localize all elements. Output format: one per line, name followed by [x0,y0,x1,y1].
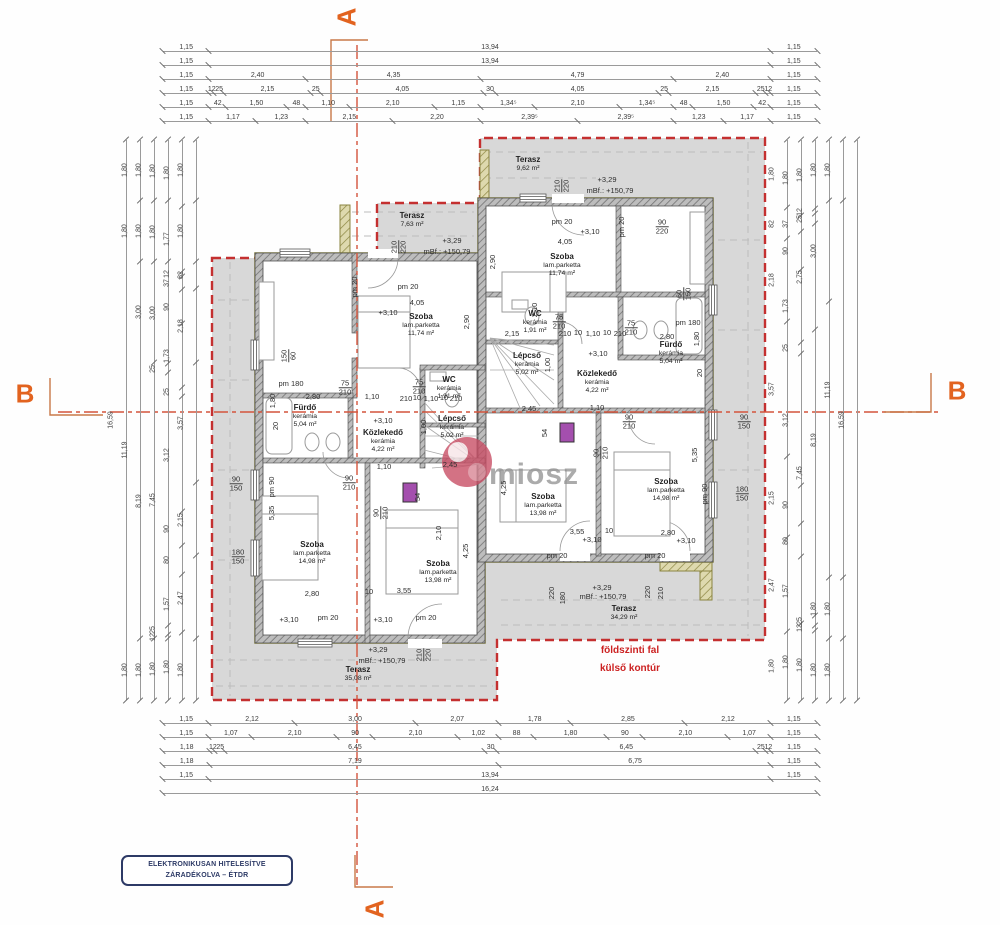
wardrobe-icon [259,282,274,360]
dim-label: 37 [164,280,171,288]
dim-label: 2,12 [721,716,735,723]
dimension-annotation: +3,10 [374,616,393,624]
dim-label: 25 [164,388,171,396]
dim-label: 1,80 [178,663,185,677]
dim-label: 1,15 [787,58,801,65]
dim-label: 1,15 [787,100,801,107]
dim-label: 1,07 [742,730,756,737]
dimension-annotation: 54 [414,493,422,501]
dim-label: 16,24 [481,786,499,793]
dimension-annotation: +3,10 [280,616,299,624]
dimension-annotation: 180150 [232,548,245,566]
dim-label: 1,15 [179,772,193,779]
dim-label: 2,10 [386,100,400,107]
dimension-annotation: 90150 [230,475,243,493]
dimension-chain: 1,152,123,002,071,782,852,121,15 [85,712,923,724]
dimension-annotation: +3,10 [583,536,602,544]
dimension-annotation: pm 20 [618,217,626,238]
note-line1: földszinti fal [601,645,659,656]
dim-label: 1,07 [224,730,238,737]
dim-label: 2,47 [769,578,776,592]
dimension-annotation: mBf.: +150,79 [359,657,406,665]
dimension-chain: 1,801,80822,183,572,152,471,80 [185,140,197,700]
dim-label: 3,00 [150,307,157,321]
dim-label: 1,80 [150,225,157,239]
dim-label: 1,80 [150,663,157,677]
dim-label: 2,40 [251,72,265,79]
dimension-annotation: +3,10 [581,228,600,236]
dim-label: 13,94 [481,772,499,779]
dimension-annotation: 2,80 [661,529,676,537]
dimension-annotation: +3,29 [598,176,617,184]
dimension-annotation: 4,25 [500,481,508,496]
dim-label: 3,00 [348,716,362,723]
dim-label: 2,39⁵ [618,114,635,121]
dim-label: 1,80 [122,663,129,677]
dimension-chain: 1,15421,50481,102,101,151,34⁵2,101,34⁵48… [85,96,923,108]
dim-label: 1,80 [811,164,818,178]
dimension-chain: 1,152,404,354,792,401,15 [85,68,923,80]
dimension-annotation: 75210 [625,319,638,337]
room-label: Közlekedőkerámia4,22 m² [363,428,403,454]
room-label: Terasz7,63 m² [400,211,425,229]
dim-label: 16,59 [108,411,115,429]
dim-label: 1,15 [451,100,465,107]
dimension-annotation: 10 [440,394,448,402]
dimension-annotation: +3,29 [593,584,612,592]
dimension-annotation: pm 20 [351,277,359,298]
dimension-annotation: 90210 [343,474,356,492]
dim-label: 2,10 [679,730,693,737]
room-label: Terasz35,08 m² [345,665,372,683]
stamp-line2: ZÁRADÉKOLVA – ÉTDR [166,872,249,879]
dim-label: 3,00 [136,305,143,319]
dimension-annotation: 1,10 [377,463,392,471]
dimension-annotation: 2,90 [489,255,497,270]
dim-label: 42 [758,100,766,107]
etdr-stamp: ELEKTRONIKUSAN HITELESÍTVE ZÁRADÉKOLVA –… [121,855,293,886]
dim-label: 1,02 [472,730,486,737]
dim-label: 1,73 [164,349,171,363]
dim-label: 2,18 [769,274,776,288]
room-label: Fürdőkerámia5,04 m² [659,340,683,366]
dim-label: 1,77 [164,233,171,247]
dim-label: 8,19 [811,433,818,447]
room-label: Lépcsőkerámia5,02 m² [438,414,466,440]
dimension-annotation: pm 90 [701,484,709,505]
dim-label: 1,23 [274,114,288,121]
dim-label: 2,20 [430,114,444,121]
dimension-annotation: 54 [541,429,549,437]
dim-label: 1,57 [783,584,790,598]
dim-label: 1,15 [179,716,193,723]
toilet-icon [305,433,319,451]
dim-label: 90 [783,247,790,255]
section-marker-b-left: B [16,379,35,410]
dimension-annotation: 90150 [738,413,751,431]
dimension-chain: 1,1812256,45306,4525121,15 [85,740,923,752]
floor-plan-canvas: 1,1513,941,151,1513,941,151,152,404,354,… [0,0,1000,925]
dimension-chain: 1,151,171,232,152,202,39⁵2,39⁵1,231,171,… [85,110,923,122]
dimension-annotation: 4,25 [462,544,470,559]
dim-label: 1,80 [825,602,832,616]
dim-label: 13,94 [481,44,499,51]
section-marker-b-right: B [948,376,967,407]
dim-label: 7,45 [797,466,804,480]
room-label: Lépcsőkerámia5,02 m² [513,351,541,377]
dim-label: 25 [150,365,157,373]
dimension-annotation: mBf.: +150,79 [580,593,627,601]
dimension-annotation: 10 [603,329,611,337]
dim-label: 1,80 [178,224,185,238]
dim-label: 1,34⁵ [639,100,656,107]
dimension-annotation: 210220 [415,649,433,662]
dim-label: 37 [783,220,790,228]
dimension-annotation: 75210 [339,379,352,397]
dim-label: 1,17 [226,114,240,121]
dimension-annotation: 10 [413,394,421,402]
dim-label: 3,57 [769,383,776,397]
toilet-icon [326,433,340,451]
dim-label: 1,80 [136,663,143,677]
room-label: Szobalam.parketta11,74 m² [543,252,580,278]
dimension-annotation: +3,10 [589,350,608,358]
dim-label: 2,15 [343,114,357,121]
dimension-annotation: 210220 [553,180,571,193]
dim-label: 1,80 [783,171,790,185]
dimension-annotation: 220 [644,586,652,599]
dimension-annotation: 220 [548,587,556,600]
dim-label: 7,45 [150,493,157,507]
dim-label: 1,80 [164,167,171,181]
dim-label: 4,05 [571,86,585,93]
dimension-annotation: 90220 [656,218,669,236]
dim-label: 6,75 [628,758,642,765]
dimension-annotation: 1,00 [544,358,552,373]
dimension-annotation: 10 [605,527,613,535]
dim-label: 1,15 [179,44,193,51]
room-label: Szobalam.parketta11,74 m² [402,312,439,338]
dimension-annotation: pm 20 [552,218,573,226]
dimension-annotation: 2,80 [660,333,675,341]
dimension-annotation: 2,90 [463,315,471,330]
section-marker-a-bottom: A [360,900,391,919]
dimension-annotation: 180 [559,592,567,605]
dim-label: 1,80 [122,224,129,238]
dim-label: 90 [164,303,171,311]
dim-label: 3,57 [178,416,185,430]
dim-label: 2,75 [797,270,804,284]
dim-label: 42 [214,100,222,107]
dimension-annotation: 1,10 [365,393,380,401]
dim-label: 3,12 [783,413,790,427]
dim-label: 1,80 [136,224,143,238]
dim-label: 1,80 [564,730,578,737]
dim-label: 2,18 [178,319,185,333]
dim-label: 82 [178,271,185,279]
dim-label: 12 [150,633,157,641]
dim-label: 2,40 [716,72,730,79]
dimension-annotation: 1,00 [420,420,428,435]
dimension-annotation: 2,45 [522,405,537,413]
dim-label: 25 [797,215,804,223]
dim-label: 90 [351,730,359,737]
dim-label: 2,10 [288,730,302,737]
dim-label: 1,80 [136,164,143,178]
dimension-annotation: 3,55 [397,587,412,595]
dim-label: 1,15 [179,100,193,107]
dim-label: 1,78 [528,716,542,723]
dimension-annotation: 5,35 [268,506,276,521]
dim-label: 1,50 [250,100,264,107]
dimension-annotation: 1,10 [590,404,605,412]
dim-label: 1,50 [717,100,731,107]
dim-label: 13,94 [481,58,499,65]
dimension-annotation: +3,10 [677,537,696,545]
dim-label: 1,15 [179,730,193,737]
dim-label: 4,35 [387,72,401,79]
dim-label: 2,85 [621,716,635,723]
dimension-annotation: +3,10 [374,417,393,425]
dim-label: 1,80 [825,663,832,677]
sink-icon [512,300,528,309]
dim-label: 1,15 [787,86,801,93]
room-label: Terasz9,62 m² [516,155,541,173]
dimension-chain: 1,1513,941,15 [85,54,923,66]
dimension-annotation: pm 20 [645,552,666,560]
dim-label: 2,15 [261,86,275,93]
dimension-annotation: pm 20 [398,283,419,291]
dim-label: 1,80 [164,660,171,674]
dimension-annotation: 90210 [372,507,390,520]
room-label: Szobalam.parketta13,98 m² [524,492,561,518]
shaft [560,423,574,442]
dimension-annotation: +3,29 [443,237,462,245]
dim-label: 16,59 [839,411,846,429]
ground-contour-note: földszinti fal külső kontúr [600,642,660,678]
dimension-annotation: 1,10 [586,330,601,338]
dim-label: 1,18 [180,758,194,765]
dimension-annotation: 2,45 [443,461,458,469]
room-label: Fürdőkerámia5,04 m² [293,403,317,429]
dimension-chain: 1,1513,941,15 [85,40,923,52]
dim-label: 88 [513,730,521,737]
dimension-annotation: pm 90 [268,477,276,498]
dimension-annotation: mBf.: +150,79 [587,187,634,195]
dimension-annotation: pm 20 [318,614,339,622]
dim-label: 3,00 [811,245,818,259]
dimension-annotation: 1,80 [693,332,701,347]
dim-label: 1,80 [122,164,129,178]
dim-label: 2,39⁵ [521,114,538,121]
dimension-annotation: 1,10 [424,395,439,403]
dimension-annotation: 2,15 [505,330,520,338]
dim-label: 4,79 [571,72,585,79]
dim-label: 6,45 [348,744,362,751]
dimension-annotation: 180150 [736,485,749,503]
room-label: Terasz34,29 m² [611,604,638,622]
dimension-annotation: 15060 [280,350,298,363]
dimension-chain: 1,1512252,15254,05304,05252,1525121,15 [85,82,923,94]
dim-label: 48 [292,100,300,107]
dim-label: 1,15 [179,72,193,79]
dim-label: 1,15 [179,86,193,93]
dim-label: 8,19 [136,494,143,508]
dim-label: 1,80 [769,659,776,673]
dimension-annotation: +3,10 [379,309,398,317]
dim-label: 6,45 [619,744,633,751]
dim-label: 2,15 [706,86,720,93]
dimension-annotation: pm 180 [675,319,700,327]
dim-label: 4,05 [396,86,410,93]
dim-label: 3,12 [164,448,171,462]
section-marker-a-top: A [332,8,363,27]
dim-label: 1,15 [179,114,193,121]
dim-label: 1,15 [179,58,193,65]
dim-label: 82 [769,220,776,228]
dim-label: 2,47 [178,591,185,605]
dim-label: 1,15 [787,772,801,779]
dim-label: 1,15 [787,44,801,51]
dimension-annotation: pm 180 [278,380,303,388]
dim-label: 2,07 [450,716,464,723]
dim-label: 2,15 [178,513,185,527]
dim-label: 1,15 [787,72,801,79]
dimension-annotation: 4,05 [410,299,425,307]
dimension-annotation: 20 [272,422,280,430]
dim-label: 80 [783,537,790,545]
dim-label: 1,23 [692,114,706,121]
dim-label: 90 [621,730,629,737]
dim-label: 1,80 [811,663,818,677]
dimension-chain: 1,803,008,191,801,80 [818,140,830,700]
dimension-annotation: pm 20 [416,614,437,622]
dim-label: 1,80 [178,164,185,178]
dimension-annotation: 210 [450,395,463,403]
dim-label: 1,80 [783,655,790,669]
dim-label: 1,80 [825,164,832,178]
dimension-annotation: 5,35 [691,448,699,463]
dim-label: 7,19 [348,758,362,765]
dimension-chain: 1,8012252,757,4525121,80 [804,140,816,700]
dim-label: 2,10 [571,100,585,107]
dimension-annotation: 10 [574,329,582,337]
dim-label: 1,57 [164,598,171,612]
dimension-annotation: 210 [657,587,665,600]
dimension-annotation: 60150 [675,288,693,301]
dimension-annotation: 210220 [390,241,408,254]
dimension-annotation: 10 [365,588,373,596]
dimension-chain: 1,801,803,00257,4525121,80 [157,140,169,700]
dim-label: 1,15 [787,716,801,723]
dimension-annotation: mBf.: +150,79 [424,248,471,256]
room-label: Közlekedőkerámia4,22 m² [577,369,617,395]
dim-label: 1,17 [740,114,754,121]
dim-label: 1,73 [783,300,790,314]
room-label: Szobalam.parketta14,98 m² [293,540,330,566]
stamp-line1: ELEKTRONIKUSAN HITELESÍTVE [148,861,266,868]
dimension-annotation: 210 [559,330,572,338]
dimension-annotation: 1,80 [269,394,277,409]
dim-label: 1,18 [180,744,194,751]
dim-label: 1,80 [150,164,157,178]
dimension-annotation: 2,10 [531,303,539,318]
dim-label: 2,10 [409,730,423,737]
dimension-chain: 1,151,072,10902,101,02881,80902,101,071,… [85,726,923,738]
dim-label: 1,80 [769,167,776,181]
dimension-annotation: 4,05 [558,238,573,246]
dimension-annotation: 20 [696,369,704,377]
dim-label: 1,15 [787,758,801,765]
dim-label: 11,19 [122,442,129,459]
dimension-annotation: 2,10 [435,526,443,541]
dimension-annotation: +3,29 [369,646,388,654]
dimension-annotation: pm 20 [547,552,568,560]
dim-label: 12 [797,624,804,632]
dimension-chain: 16,59 [846,140,858,700]
dimension-annotation: 90210 [592,447,610,460]
dim-label: 48 [680,100,688,107]
dim-label: 1,34⁵ [500,100,517,107]
dimension-chain: 1,1513,941,15 [85,768,923,780]
dim-label: 90 [783,501,790,509]
dimension-chain: 16,24 [85,782,923,794]
dimension-annotation: 90210 [623,413,636,431]
dim-label: 80 [164,557,171,565]
dimension-annotation: 2,80 [306,393,321,401]
dim-label: 1,15 [787,744,801,751]
dim-label: 1,80 [797,168,804,182]
dimension-chain: 1,187,196,751,15 [85,754,923,766]
dimension-annotation: 2,80 [305,590,320,598]
dim-label: 1,10 [321,100,335,107]
note-line2: külső kontúr [600,663,660,674]
dim-label: 25 [783,344,790,352]
room-label: Szobalam.parketta14,98 m² [647,477,684,503]
wardrobe-icon [690,212,705,284]
dimension-annotation: 210 [400,395,413,403]
dim-label: 11,19 [825,381,832,398]
dim-label: 12 [164,270,171,278]
room-label: Szobalam.parketta13,98 m² [419,559,456,585]
dim-label: 1,15 [787,114,801,121]
dim-label: 2,15 [769,491,776,505]
dim-label: 1,80 [811,602,818,616]
dim-label: 2,12 [245,716,259,723]
dim-label: 90 [164,525,171,533]
dim-label: 1,80 [797,659,804,673]
dim-label: 1,15 [787,730,801,737]
